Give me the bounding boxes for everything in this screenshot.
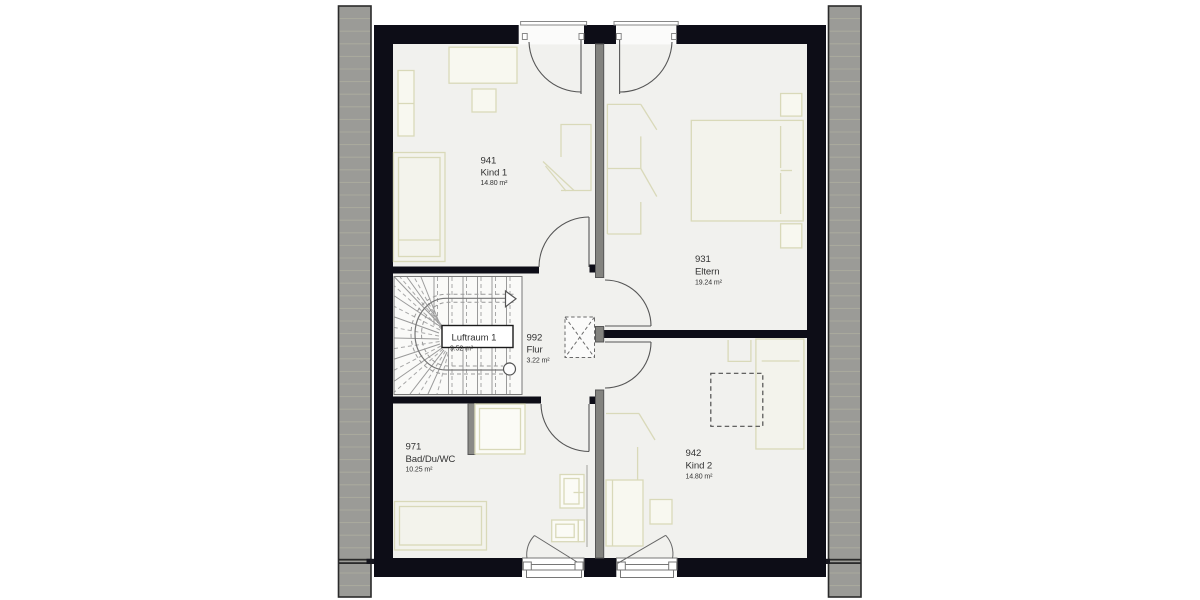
- svg-text:19.24 m²: 19.24 m²: [695, 279, 723, 286]
- svg-text:Luftraum 1: Luftraum 1: [452, 333, 497, 344]
- svg-text:971: 971: [406, 442, 422, 453]
- svg-text:992: 992: [527, 332, 543, 343]
- svg-text:Kind 1: Kind 1: [481, 168, 508, 179]
- svg-text:3.22 m²: 3.22 m²: [527, 357, 551, 364]
- svg-text:942: 942: [686, 448, 702, 459]
- svg-text:Flur: Flur: [527, 344, 544, 355]
- svg-text:14.80 m²: 14.80 m²: [686, 473, 714, 480]
- svg-text:941: 941: [481, 155, 497, 166]
- svg-text:931: 931: [695, 254, 711, 265]
- svg-text:Eltern: Eltern: [695, 266, 719, 277]
- svg-text:14.80 m²: 14.80 m²: [481, 180, 509, 187]
- svg-text:9.52 m²: 9.52 m²: [450, 346, 474, 353]
- svg-text:Kind 2: Kind 2: [686, 460, 713, 471]
- svg-text:10.25 m²: 10.25 m²: [406, 466, 434, 473]
- svg-text:Bad/Du/WC: Bad/Du/WC: [406, 454, 456, 465]
